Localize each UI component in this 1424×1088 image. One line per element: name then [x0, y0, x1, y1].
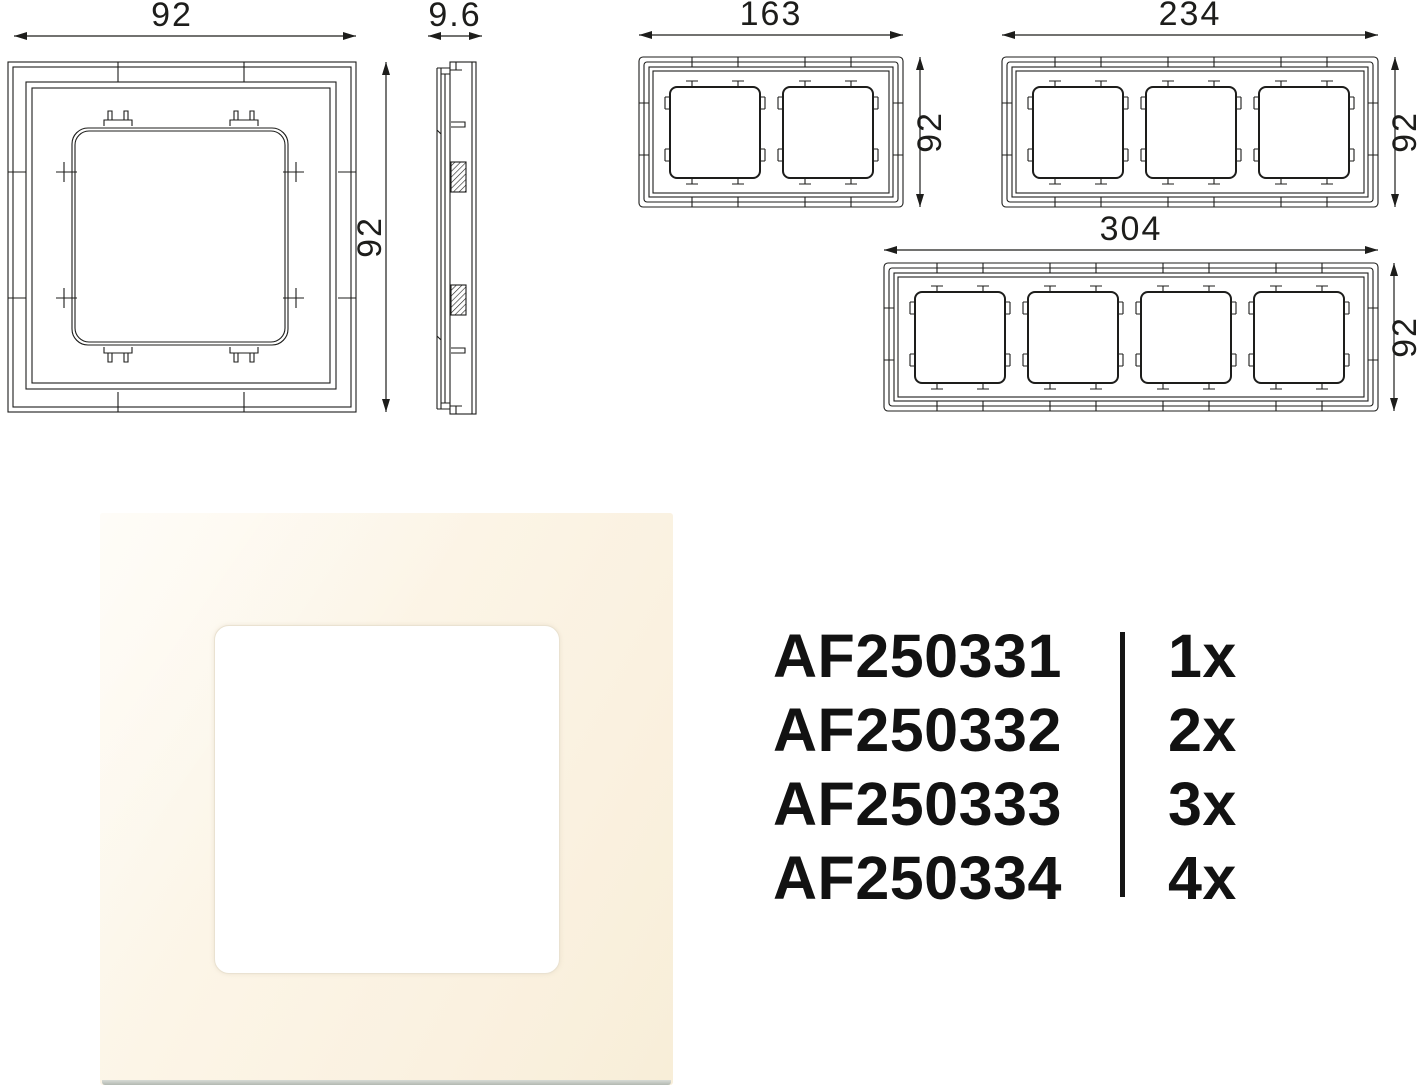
- three-gang-drawing: 234 92: [1002, 0, 1424, 207]
- product-code: AF250334: [773, 841, 1062, 915]
- two-gang-height-dim-label: 92: [911, 111, 949, 153]
- datasheet-page: 92 92 9.6 163: [0, 0, 1424, 1088]
- product-quantity: 1x: [1168, 619, 1237, 693]
- product-code: AF250331: [773, 619, 1062, 693]
- four-gang-opening-3: [1136, 286, 1236, 389]
- product-code-list: AF250331 AF250332 AF250333 AF250334: [773, 619, 1062, 915]
- four-gang-opening-4: [1249, 286, 1349, 389]
- front-side-tabs: [56, 162, 304, 308]
- front-outer-frame-inner-line: [13, 67, 351, 407]
- four-gang-inner-frame-inner-line: [898, 277, 1364, 397]
- product-quantity: 4x: [1168, 841, 1237, 915]
- product-quantity: 2x: [1168, 693, 1237, 767]
- product-quantity-list: 1x 2x 3x 4x: [1168, 619, 1237, 915]
- four-gang-drawing: 304 92: [884, 210, 1424, 411]
- side-view-drawing: 9.6: [428, 0, 482, 414]
- code-qty-divider: [1120, 632, 1125, 897]
- front-view-drawing: 92 92: [8, 0, 389, 412]
- two-gang-opening-2: [778, 81, 878, 184]
- photo-bottom-edge: [102, 1080, 671, 1085]
- three-gang-width-dim-label: 234: [1159, 0, 1222, 33]
- two-gang-border-ticks: [639, 57, 903, 207]
- four-gang-border-ticks: [884, 263, 1378, 411]
- four-gang-height-dim-label: 92: [1386, 316, 1424, 358]
- three-gang-height-dim-label: 92: [1386, 111, 1424, 153]
- product-code: AF250333: [773, 767, 1062, 841]
- three-gang-opening-2: [1141, 81, 1241, 184]
- two-gang-opening-1: [665, 81, 765, 184]
- three-gang-inner-frame-inner-line: [1016, 71, 1364, 193]
- front-top-clips: [104, 111, 258, 126]
- product-photo: [100, 513, 673, 1085]
- three-gang-outer-frame-inner-line: [1007, 62, 1373, 202]
- four-gang-outer-frame-inner-line: [889, 268, 1373, 406]
- front-opening: [72, 128, 288, 345]
- three-gang-opening-3: [1254, 81, 1354, 184]
- two-gang-inner-frame-inner-line: [653, 71, 889, 193]
- front-border-ticks: [8, 62, 356, 412]
- four-gang-outer-frame: [884, 263, 1378, 411]
- product-code: AF250332: [773, 693, 1062, 767]
- four-gang-width-dim-label: 304: [1100, 210, 1163, 248]
- two-gang-width-dim-label: 163: [740, 0, 803, 33]
- side-profile-lines: [437, 62, 472, 414]
- side-clip-hatch-upper: [451, 162, 466, 192]
- front-opening-inner-line: [75, 131, 285, 342]
- two-gang-drawing: 163 92: [639, 0, 949, 207]
- technical-drawings: 92 92 9.6 163: [0, 0, 1424, 440]
- side-depth-dim-label: 9.6: [428, 0, 481, 34]
- front-outer-frame: [8, 62, 356, 412]
- four-gang-opening-2: [1023, 286, 1123, 389]
- front-height-dim-label: 92: [351, 216, 389, 258]
- product-photo-opening: [214, 625, 560, 974]
- product-quantity: 3x: [1168, 767, 1237, 841]
- two-gang-outer-frame: [639, 57, 903, 207]
- side-clip-tabs: [451, 122, 465, 353]
- four-gang-opening-1: [910, 286, 1010, 389]
- front-bottom-clips: [104, 347, 258, 362]
- front-width-dim-label: 92: [151, 0, 193, 34]
- three-gang-opening-1: [1028, 81, 1128, 184]
- two-gang-outer-frame-inner-line: [644, 62, 898, 202]
- side-clip-hatch-lower: [451, 285, 466, 315]
